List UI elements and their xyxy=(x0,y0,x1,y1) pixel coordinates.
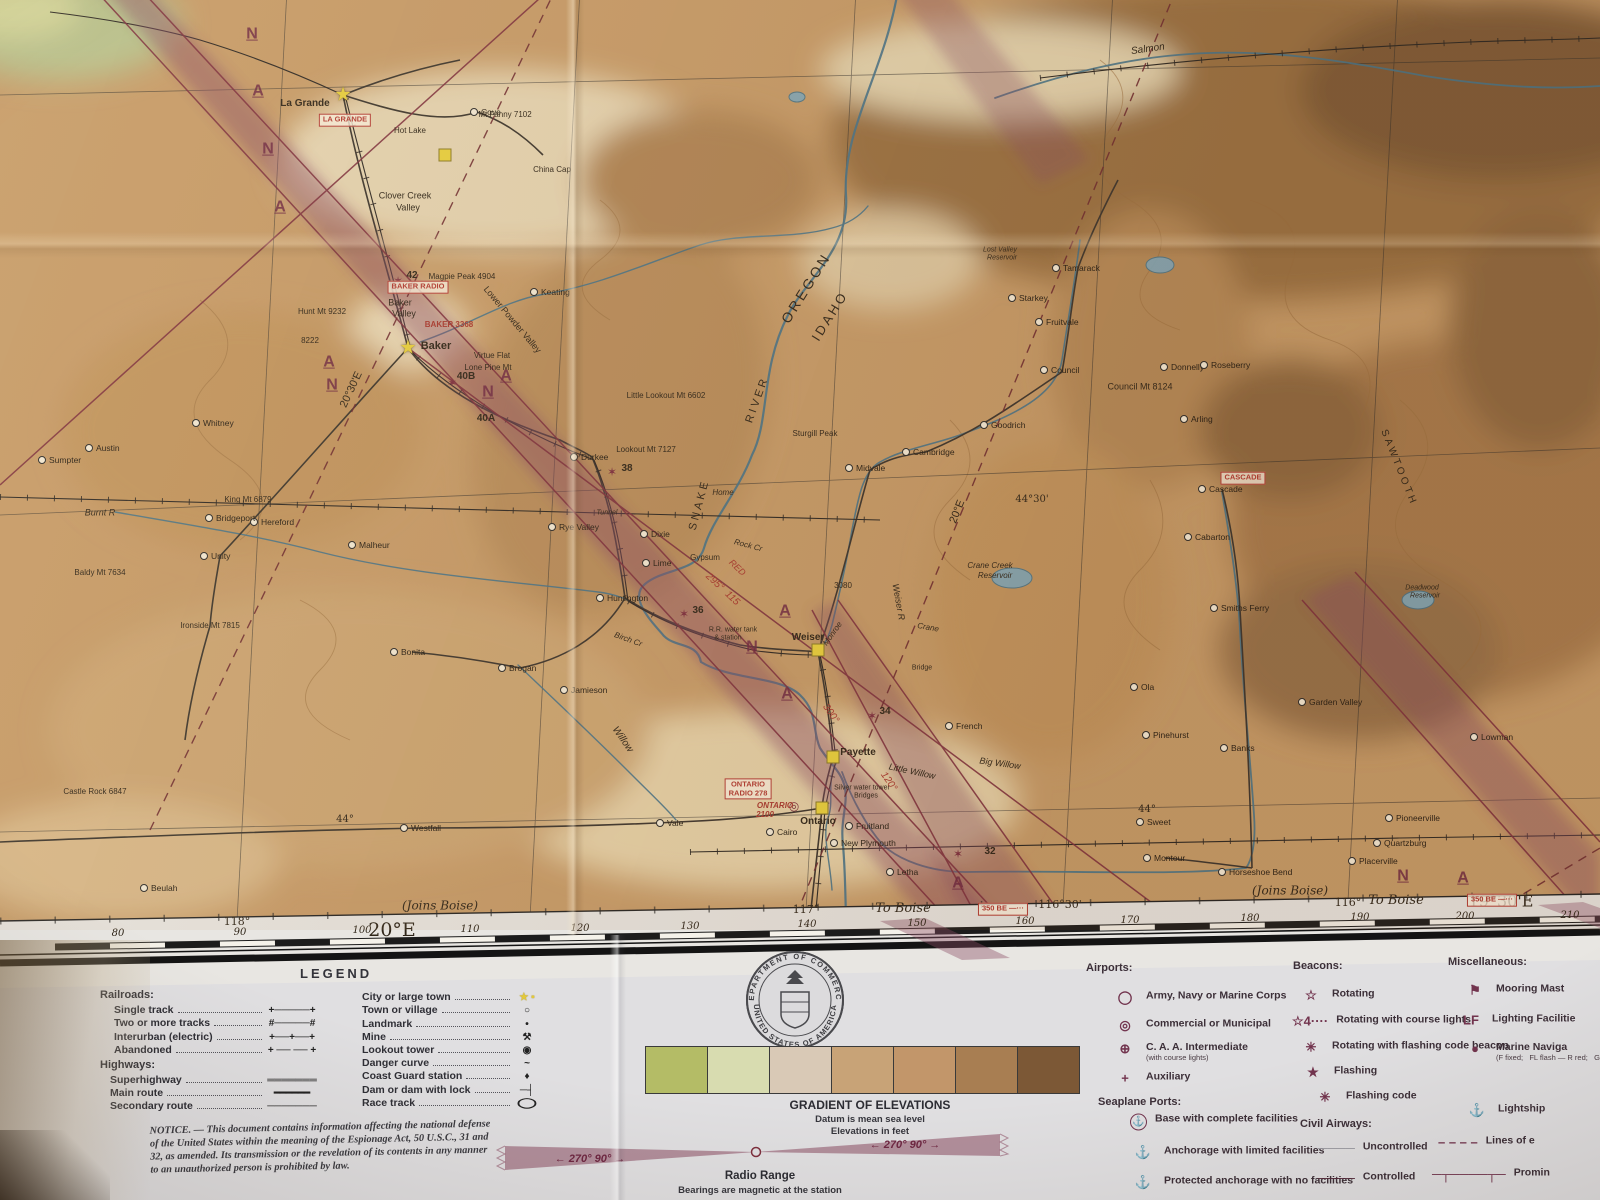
map-label: 116° xyxy=(1335,897,1362,909)
town-marker: Starkey xyxy=(1008,293,1048,303)
map-label: 32 xyxy=(984,847,995,858)
elevation-color-swatch xyxy=(955,1046,1018,1094)
town-marker: Sumpter xyxy=(38,455,81,465)
map-label: Reservoir xyxy=(978,572,1012,580)
town-marker: Banks xyxy=(1220,743,1255,753)
map-label: 34 xyxy=(879,707,890,718)
map-label: Crane Creek xyxy=(967,562,1012,570)
map-label: Mt Fanny 7102 xyxy=(478,111,531,119)
seaplane-symbol-icon: ⚓ xyxy=(1130,1146,1156,1159)
airway-item-label: Uncontrolled xyxy=(1363,1141,1428,1153)
map-label: 8222 xyxy=(301,337,319,345)
town-dot-icon xyxy=(830,839,838,847)
town-label: Ola xyxy=(1141,682,1154,692)
legend-row-label: Superhighway xyxy=(110,1074,182,1086)
town-label: Westfall xyxy=(411,823,441,833)
town-dot-icon xyxy=(1298,698,1306,706)
map-label: Deadwood xyxy=(1405,584,1438,591)
seaplane-item-label: Anchorage with limited facilities xyxy=(1164,1145,1324,1157)
town-label: Bonita xyxy=(401,647,425,657)
beacon-symbol-icon: ☆ xyxy=(1298,989,1324,1002)
town-label: Lowman xyxy=(1481,732,1513,742)
map-label: 20°E xyxy=(368,921,416,941)
dotted-leader xyxy=(178,1012,262,1013)
elevation-gradient: GRADIENT OF ELEVATIONS Datum is mean sea… xyxy=(640,1032,1100,1142)
town-dot-icon xyxy=(498,664,506,672)
legend-beacon-item: ☆4···· Rotating with course lights xyxy=(1292,1015,1471,1028)
map-label: Clover Creek xyxy=(379,191,432,200)
town-marker: Jamieson xyxy=(560,685,607,695)
dotted-leader xyxy=(419,1105,510,1106)
town-dot-icon xyxy=(656,819,664,827)
legend-row-label: Landmark xyxy=(362,1018,412,1030)
town-dot-icon xyxy=(470,108,478,116)
town-dot-icon xyxy=(570,453,578,461)
legend-misc-item: – – – – Lines of e xyxy=(1438,1136,1535,1149)
map-label: & station xyxy=(714,634,741,641)
dotted-leader xyxy=(433,1065,510,1066)
town-marker: Lime xyxy=(642,558,671,568)
legend-row: Town or village ○ xyxy=(362,1003,540,1016)
town-dot-icon xyxy=(1218,868,1226,876)
legend-row-symbol: ★ ▪ xyxy=(514,992,540,1003)
town-marker: Cascade xyxy=(1198,484,1243,494)
legend-row: Interurban (electric) +──+──+ xyxy=(100,1029,318,1042)
misc-item-sub: (F fixed; FL flash — R red; G green xyxy=(1496,1054,1600,1062)
elevation-color-swatch xyxy=(893,1046,956,1094)
map-label: Burnt R xyxy=(85,508,116,517)
town-label: Huntington xyxy=(607,593,648,603)
map-label: N xyxy=(246,27,258,44)
map-label: Virtue Flat xyxy=(474,352,510,360)
town-label: Jamieson xyxy=(571,685,607,695)
town-dot-icon xyxy=(38,456,46,464)
dotted-leader xyxy=(214,1025,262,1026)
map-label: Tunnel xyxy=(597,509,618,516)
town-dot-icon xyxy=(845,464,853,472)
misc-symbol-icon: ● xyxy=(1462,1042,1488,1055)
town-dot-icon xyxy=(980,421,988,429)
map-label: 130 xyxy=(680,922,699,933)
town-label: Garden Valley xyxy=(1309,697,1362,707)
legend-row-symbol: ─────── xyxy=(266,1101,318,1112)
map-label: A xyxy=(500,369,512,386)
legend-row: Mine ⚒ xyxy=(362,1030,540,1043)
map-label: Bridges xyxy=(854,792,878,799)
town-marker: Whitney xyxy=(192,418,234,428)
beacon-icon: ✶ xyxy=(447,376,457,390)
map-label: Silver water tower xyxy=(834,784,890,791)
legend-beacon-item: ★ Flashing xyxy=(1300,1066,1377,1079)
map-label: 40A xyxy=(477,414,495,425)
map-label: Valley xyxy=(396,203,420,212)
legend-row-symbol: ◉ xyxy=(514,1045,540,1056)
airport-item-sub: (with course lights) xyxy=(1146,1054,1248,1062)
legend-misc-item: ● Marine Naviga(F fixed; FL flash — R re… xyxy=(1462,1042,1600,1062)
beacon-symbol-icon: ✳ xyxy=(1312,1091,1338,1104)
map-label: 160 xyxy=(1015,917,1034,928)
airway-item-label: Controlled xyxy=(1363,1171,1416,1183)
town-label: Starkey xyxy=(1019,293,1048,303)
town-dot-icon xyxy=(1220,744,1228,752)
legend-row-label: Lookout tower xyxy=(362,1044,434,1056)
town-dot-icon xyxy=(205,514,213,522)
town-dot-icon xyxy=(390,648,398,656)
town-marker: Horseshoe Bend xyxy=(1218,867,1292,877)
misc-symbol-icon: ─┬────┬─ xyxy=(1432,1168,1506,1181)
map-label: Castle Rock 6847 xyxy=(63,788,126,796)
legend-row: Lookout tower ◉ xyxy=(362,1043,540,1056)
map-label: A xyxy=(781,687,793,704)
beacon-symbol-icon: ✳ xyxy=(1298,1041,1324,1054)
airport-item-label: Commercial or Municipal xyxy=(1146,1018,1271,1030)
radio-facility-box: 350 BE —··· xyxy=(1467,894,1517,907)
town-label: Malheur xyxy=(359,540,390,550)
legend-row-label: Secondary route xyxy=(110,1100,193,1112)
legend-row: Danger curve ~ xyxy=(362,1056,540,1069)
dotted-leader xyxy=(442,1012,510,1013)
town-marker: Roseberry xyxy=(1200,360,1250,370)
town-dot-icon xyxy=(596,594,604,602)
legend-row-symbol: ♦ xyxy=(514,1071,540,1082)
town-label: Midvale xyxy=(856,463,885,473)
town-marker: Pinehurst xyxy=(1142,730,1189,740)
beacon-item-label: Flashing xyxy=(1334,1065,1377,1077)
legend-row-label: Coast Guard station xyxy=(362,1070,462,1082)
town-marker: Hereford xyxy=(250,517,294,527)
town-marker: Keating xyxy=(530,287,570,297)
legend-symbols: City or large town ★ ▪ Town or village ○… xyxy=(362,990,540,1109)
dotted-leader xyxy=(475,1092,510,1093)
legend-row-symbol: ~ xyxy=(514,1058,540,1069)
town-dot-icon xyxy=(548,523,556,531)
town-dot-icon xyxy=(1200,361,1208,369)
town-label: Quartzburg xyxy=(1384,838,1427,848)
legend-seaplane-item: ⚓ Anchorage with limited facilities xyxy=(1130,1146,1324,1159)
town-dot-icon xyxy=(640,530,648,538)
town-marker: Goodrich xyxy=(980,420,1026,430)
map-label: 210 xyxy=(1560,911,1579,922)
map-label: Weiser xyxy=(792,633,825,644)
town-label: Cambridge xyxy=(913,447,955,457)
town-dot-icon xyxy=(1143,854,1151,862)
dotted-leader xyxy=(197,1108,262,1109)
legend-row-label: Mine xyxy=(362,1031,386,1043)
legend-row: Superhighway ═══════ xyxy=(100,1073,318,1086)
town-dot-icon xyxy=(886,868,894,876)
town-label: Cascade xyxy=(1209,484,1243,494)
legend-row-symbol: ⚒ xyxy=(514,1032,540,1043)
elevation-gradient-title: GRADIENT OF ELEVATIONS xyxy=(640,1098,1100,1112)
map-label: A xyxy=(323,355,335,372)
map-label: 116°30' xyxy=(1038,899,1082,911)
elevation-color-swatch xyxy=(707,1046,770,1094)
legend-airport-item: ⊕ C. A. A. Intermediate(with course ligh… xyxy=(1112,1042,1248,1062)
map-label: 200 xyxy=(1455,912,1474,923)
town-marker: Fruitvale xyxy=(1035,317,1079,327)
radio-range-left-label: ← 270° 90° → xyxy=(555,1153,626,1165)
legend-railroads-heading: Railroads: xyxy=(100,989,318,1001)
town-marker: Pioneerville xyxy=(1385,813,1440,823)
map-label: Reservoir xyxy=(987,254,1017,261)
town-marker: Westfall xyxy=(400,823,441,833)
beacon-item-label: Rotating with course lights xyxy=(1336,1014,1471,1026)
town-label: Bridgeport xyxy=(216,513,255,523)
legend-row-label: Danger curve xyxy=(362,1057,429,1069)
map-label: Baker xyxy=(421,341,452,353)
dotted-leader xyxy=(217,1039,262,1040)
map-label: 150 xyxy=(907,919,926,930)
map-label: 180 xyxy=(1240,914,1259,925)
town-marker: Vale xyxy=(656,818,683,828)
town-marker: Lowman xyxy=(1470,732,1513,742)
map-label: Home xyxy=(712,489,733,497)
map-label: Ironside Mt 7815 xyxy=(180,622,240,630)
seaplane-item-label: Base with complete facilities xyxy=(1155,1113,1298,1125)
miscellaneous-heading: Miscellaneous: xyxy=(1448,956,1527,968)
beacon-icon: ✶ xyxy=(953,847,963,861)
town-marker: Donnelly xyxy=(1160,362,1204,372)
map-label: Payette xyxy=(840,748,876,759)
town-marker: Smiths Ferry xyxy=(1210,603,1269,613)
town-marker: Beulah xyxy=(140,883,177,893)
legend-row-label: Abandoned xyxy=(114,1044,172,1056)
radio-range-sub: Bearings are magnetic at the station xyxy=(650,1185,870,1196)
airway-line-icon: ──── xyxy=(1318,1172,1355,1185)
map-label: 44° xyxy=(1138,805,1156,816)
town-dot-icon xyxy=(140,884,148,892)
civil-airways-heading: Civil Airways: xyxy=(1300,1118,1372,1130)
town-dot-icon xyxy=(200,552,208,560)
town-label: Hereford xyxy=(261,517,294,527)
town-label: Banks xyxy=(1231,743,1255,753)
town-marker: Tamarack xyxy=(1052,263,1100,273)
town-marker: Midvale xyxy=(845,463,885,473)
legend-beacon-item: ☆ Rotating xyxy=(1298,989,1375,1002)
beacons-heading: Beacons: xyxy=(1293,960,1343,972)
beacon-icon: ✶ xyxy=(867,709,877,723)
beacon-symbol-icon: ☆4···· xyxy=(1292,1015,1328,1028)
map-label: 40B xyxy=(457,372,475,383)
town-label: Durkee xyxy=(581,452,608,462)
legend-airport-item: + Auxiliary xyxy=(1112,1072,1190,1085)
town-marker: Council xyxy=(1040,365,1079,375)
seaplane-heading: Seaplane Ports: xyxy=(1098,1096,1181,1108)
town-dot-icon xyxy=(766,828,774,836)
town-marker: Durkee xyxy=(570,452,608,462)
dotted-leader xyxy=(455,999,510,1000)
map-label: To Boise xyxy=(875,902,931,916)
town-marker: Austin xyxy=(85,443,120,453)
airport-symbol-icon: ⊕ xyxy=(1112,1042,1138,1055)
town-label: Cabarton xyxy=(1195,532,1230,542)
legend-airway-item: ──── Controlled xyxy=(1318,1172,1415,1185)
misc-item-label: Lighting Facilitie xyxy=(1492,1013,1575,1025)
town-label: Pinehurst xyxy=(1153,730,1189,740)
map-label: Hot Lake xyxy=(394,127,426,135)
town-label: New Plymouth xyxy=(841,838,896,848)
radio-facility-box: LA GRANDE xyxy=(319,114,371,127)
town-label: Tamarack xyxy=(1063,263,1100,273)
town-dot-icon xyxy=(1385,814,1393,822)
legend-row-label: Single track xyxy=(114,1004,174,1016)
town-dot-icon xyxy=(85,444,93,452)
map-label: Bridge xyxy=(912,664,932,671)
map-label: 170 xyxy=(1120,916,1139,927)
town-marker: Garden Valley xyxy=(1298,697,1362,707)
legend-highways-heading: Highways: xyxy=(100,1059,318,1071)
chart-photo: DEPARTMENT OF COMMERCE UNITED STATES OF … xyxy=(0,0,1600,1200)
town-label: Sumpter xyxy=(49,455,81,465)
misc-item-label: Lines of e xyxy=(1486,1135,1535,1147)
town-dot-icon xyxy=(1470,733,1478,741)
beacon-item-label: Flashing code xyxy=(1346,1090,1417,1102)
town-label: Montour xyxy=(1154,853,1185,863)
town-dot-icon xyxy=(1136,818,1144,826)
city-square-marker xyxy=(439,149,452,162)
town-dot-icon xyxy=(348,541,356,549)
legend-railroads: Railroads: Single track +─────+ Two or m… xyxy=(100,986,318,1112)
map-label: A xyxy=(252,84,264,101)
airport-symbol-icon: ◯ xyxy=(1112,991,1138,1004)
town-marker: Arling xyxy=(1180,414,1213,424)
town-dot-icon xyxy=(1180,415,1188,423)
elevation-color-swatch xyxy=(1017,1046,1080,1094)
legend-row-symbol: ─┤ xyxy=(514,1085,540,1096)
misc-item-label: Promin xyxy=(1514,1167,1550,1179)
town-dot-icon xyxy=(1052,264,1060,272)
city-square-marker xyxy=(827,751,840,764)
legend-row-label: Main route xyxy=(110,1087,163,1099)
map-label: R.R. water tank xyxy=(709,626,757,633)
map-label: 140 xyxy=(797,920,816,931)
map-label: N xyxy=(262,142,274,159)
town-marker: Huntington xyxy=(596,593,648,603)
misc-item-label: Marine Naviga xyxy=(1496,1041,1567,1053)
map-label: N xyxy=(1397,869,1409,886)
legend-row-symbol: +─────+ xyxy=(266,1005,318,1016)
radio-facility-box: ONTARIO RADIO 278 xyxy=(725,778,772,799)
map-label: 120 xyxy=(570,924,589,935)
town-marker: French xyxy=(945,721,982,731)
dotted-leader xyxy=(390,1039,510,1040)
legend-row-label: Dam or dam with lock xyxy=(362,1084,471,1096)
legend-row: Abandoned + ── ── + xyxy=(100,1043,318,1056)
elevation-gradient-sub2: Elevations in feet xyxy=(640,1126,1100,1137)
legend-row-symbol: ═══════ xyxy=(266,1075,318,1086)
map-label: Council Mt 8124 xyxy=(1107,382,1172,391)
town-marker: Sweet xyxy=(1136,817,1171,827)
legend-seaplane-item: ⚓ Base with complete facilities xyxy=(1130,1114,1298,1131)
map-label: 190 xyxy=(1350,913,1369,924)
legend-row-label: Interurban (electric) xyxy=(114,1031,213,1043)
legend-misc-item: LF Lighting Facilitie xyxy=(1458,1014,1575,1027)
misc-item-label: Lightship xyxy=(1498,1103,1545,1115)
seaplane-symbol-icon: ⚓ xyxy=(1130,1176,1156,1189)
legend-row: Race track ◯ xyxy=(362,1096,540,1109)
town-dot-icon xyxy=(642,559,650,567)
legend-row-label: Race track xyxy=(362,1097,415,1109)
map-label: 2100 xyxy=(756,811,774,819)
map-label: La Grande xyxy=(280,99,329,110)
misc-symbol-icon: ⚑ xyxy=(1462,984,1488,997)
security-notice: NOTICE. — This document contains informa… xyxy=(149,1118,495,1177)
misc-item-label: Mooring Mast xyxy=(1496,983,1564,995)
map-label: Valley xyxy=(392,309,416,318)
town-marker: Quartzburg xyxy=(1373,838,1427,848)
town-label: Beulah xyxy=(151,883,177,893)
map-label: Ontario xyxy=(800,817,836,828)
map-label: A xyxy=(1457,871,1469,888)
airport-item-label: C. A. A. Intermediate xyxy=(1146,1041,1248,1053)
map-label: Baker xyxy=(388,298,412,307)
map-label: Gypsum xyxy=(690,554,720,562)
city-star-icon: ★ xyxy=(399,337,416,360)
map-label: 44°30' xyxy=(1015,495,1048,506)
legend-row: Coast Guard station ♦ xyxy=(362,1069,540,1082)
airports-heading: Airports: xyxy=(1086,962,1132,974)
town-dot-icon xyxy=(1184,533,1192,541)
map-label: Hunt Mt 9232 xyxy=(298,308,346,316)
elevation-color-swatch xyxy=(831,1046,894,1094)
legend-airport-item: ◯ Army, Navy or Marine Corps xyxy=(1112,991,1286,1004)
town-label: Keating xyxy=(541,287,570,297)
legend-row-symbol: +──+──+ xyxy=(266,1032,318,1043)
legend-row: Two or more tracks #─────# xyxy=(100,1016,318,1029)
map-label: 90 xyxy=(234,928,247,939)
town-dot-icon xyxy=(1130,683,1138,691)
legend-misc-item: ⚓ Lightship xyxy=(1464,1104,1545,1117)
town-label: Fruitvale xyxy=(1046,317,1079,327)
town-dot-icon xyxy=(1160,363,1168,371)
elevation-color-bar xyxy=(645,1046,1079,1094)
map-label: Sturgill Peak xyxy=(793,430,838,438)
map-label: 3080 xyxy=(834,582,852,590)
dotted-leader xyxy=(186,1082,262,1083)
town-label: Council xyxy=(1051,365,1079,375)
map-label: BAKER 3368 xyxy=(425,321,473,329)
town-label: Austin xyxy=(96,443,120,453)
map-label: 42 xyxy=(406,271,417,282)
map-label: 80 xyxy=(112,929,125,940)
town-dot-icon xyxy=(945,722,953,730)
town-label: Fruitland xyxy=(856,821,889,831)
town-label: Cairo xyxy=(777,827,797,837)
misc-symbol-icon: ⚓ xyxy=(1464,1104,1490,1117)
elevation-gradient-sub1: Datum is mean sea level xyxy=(640,1114,1100,1125)
town-label: Rye Valley xyxy=(559,522,599,532)
map-label: 36 xyxy=(692,606,703,617)
misc-symbol-icon: LF xyxy=(1458,1014,1484,1027)
map-label: King Mt 6879 xyxy=(224,496,271,504)
airway-line-icon: ──── xyxy=(1318,1142,1355,1155)
airport-symbol-icon: + xyxy=(1112,1072,1138,1085)
town-dot-icon xyxy=(1142,731,1150,739)
airport-item-label: Auxiliary xyxy=(1146,1071,1190,1083)
beacon-icon: ✶ xyxy=(679,607,689,621)
legend-row: Main route ━━━━━━ xyxy=(100,1086,318,1099)
airport-symbol-icon: ◎ xyxy=(1112,1019,1138,1032)
dotted-leader xyxy=(167,1095,262,1096)
dotted-leader xyxy=(466,1078,510,1079)
legend-row-label: City or large town xyxy=(362,991,451,1003)
map-label: N xyxy=(326,378,338,395)
map-label: To Boise xyxy=(1368,894,1424,908)
map-label: (Joins Boise) xyxy=(402,900,478,913)
town-dot-icon xyxy=(530,288,538,296)
legend-row: City or large town ★ ▪ xyxy=(362,990,540,1003)
town-marker: New Plymouth xyxy=(830,838,896,848)
